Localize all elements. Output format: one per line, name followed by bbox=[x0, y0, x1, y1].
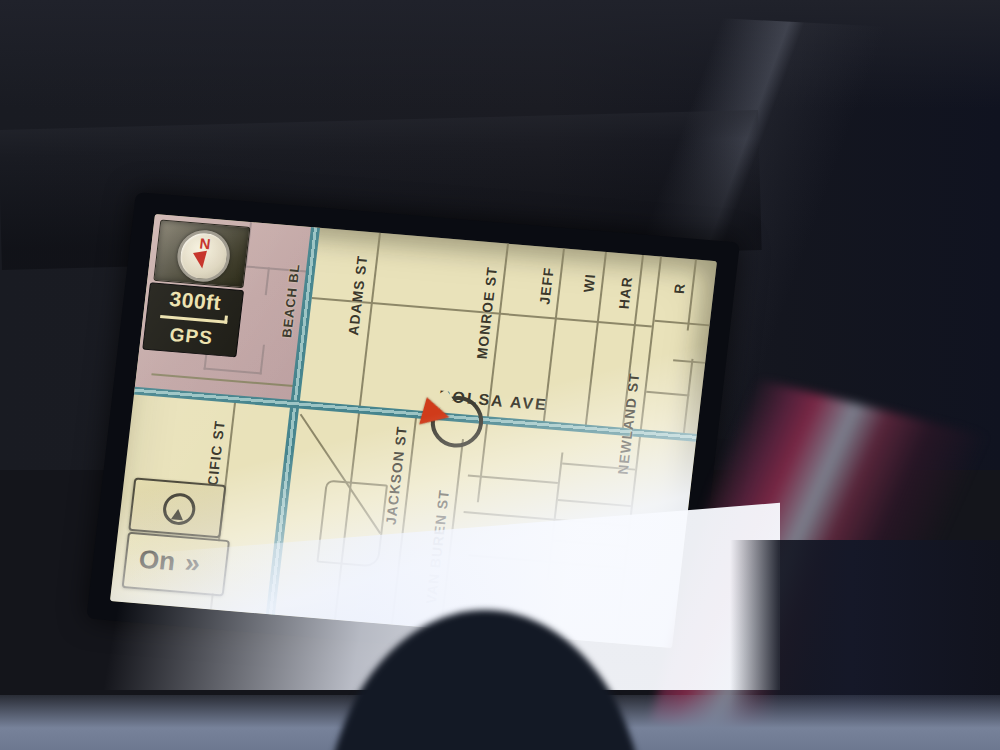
heading-up-arrow-icon bbox=[171, 508, 184, 520]
street-label-har: HAR bbox=[616, 276, 636, 310]
street-label-wi: WI bbox=[580, 273, 598, 293]
compass-needle-icon bbox=[193, 251, 209, 270]
minor-road bbox=[558, 499, 631, 507]
compass-icon: N bbox=[175, 228, 233, 284]
map-orientation-button[interactable] bbox=[128, 477, 226, 538]
street-label-r: R bbox=[671, 282, 688, 294]
car-dashboard-photo: BEACH BL ADAMS ST MONROE ST JEFF WI HAR … bbox=[0, 0, 1000, 750]
street-label-adams-st: ADAMS ST bbox=[345, 255, 370, 336]
minor-road bbox=[646, 391, 689, 397]
minor-road bbox=[673, 359, 705, 364]
street-label-jeff: JEFF bbox=[536, 266, 556, 305]
minor-road bbox=[687, 259, 697, 330]
minor-road bbox=[654, 320, 709, 327]
compass-button[interactable]: N bbox=[153, 219, 250, 288]
scale-gps-panel: 300ft GPS bbox=[142, 282, 244, 357]
gps-status-label: GPS bbox=[144, 321, 239, 352]
minor-road bbox=[682, 359, 693, 437]
